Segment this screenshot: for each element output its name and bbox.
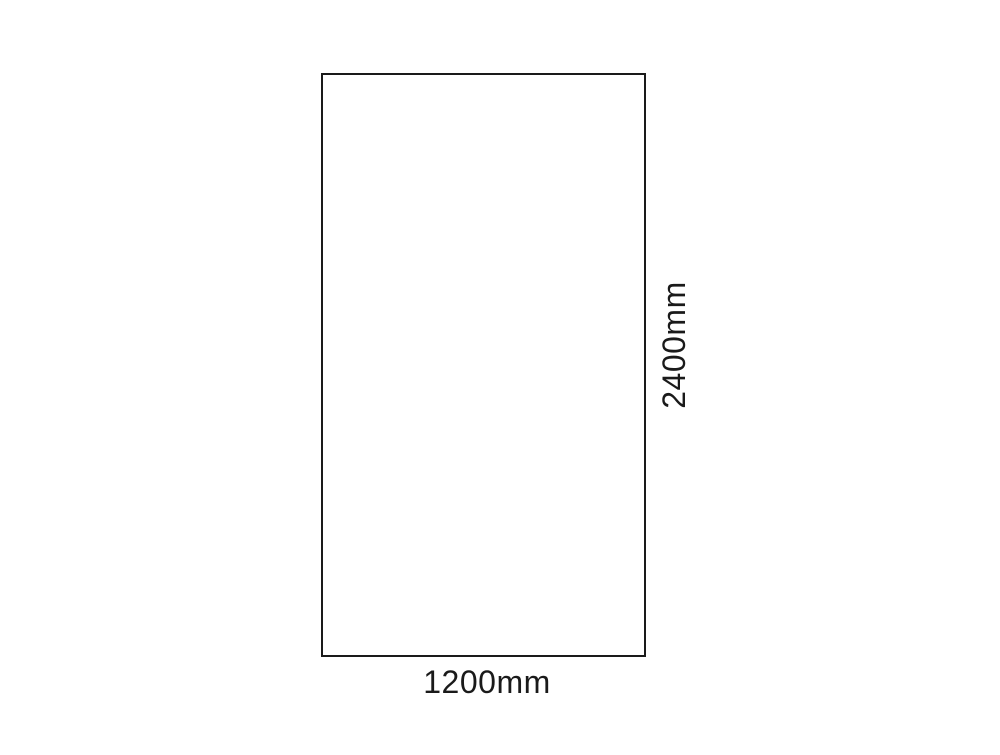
- diagram-canvas: 2400mm 1200mm: [0, 0, 1000, 755]
- panel-rectangle: [321, 73, 646, 657]
- height-dimension-label: 2400mm: [658, 281, 690, 409]
- width-dimension-label: 1200mm: [423, 666, 551, 698]
